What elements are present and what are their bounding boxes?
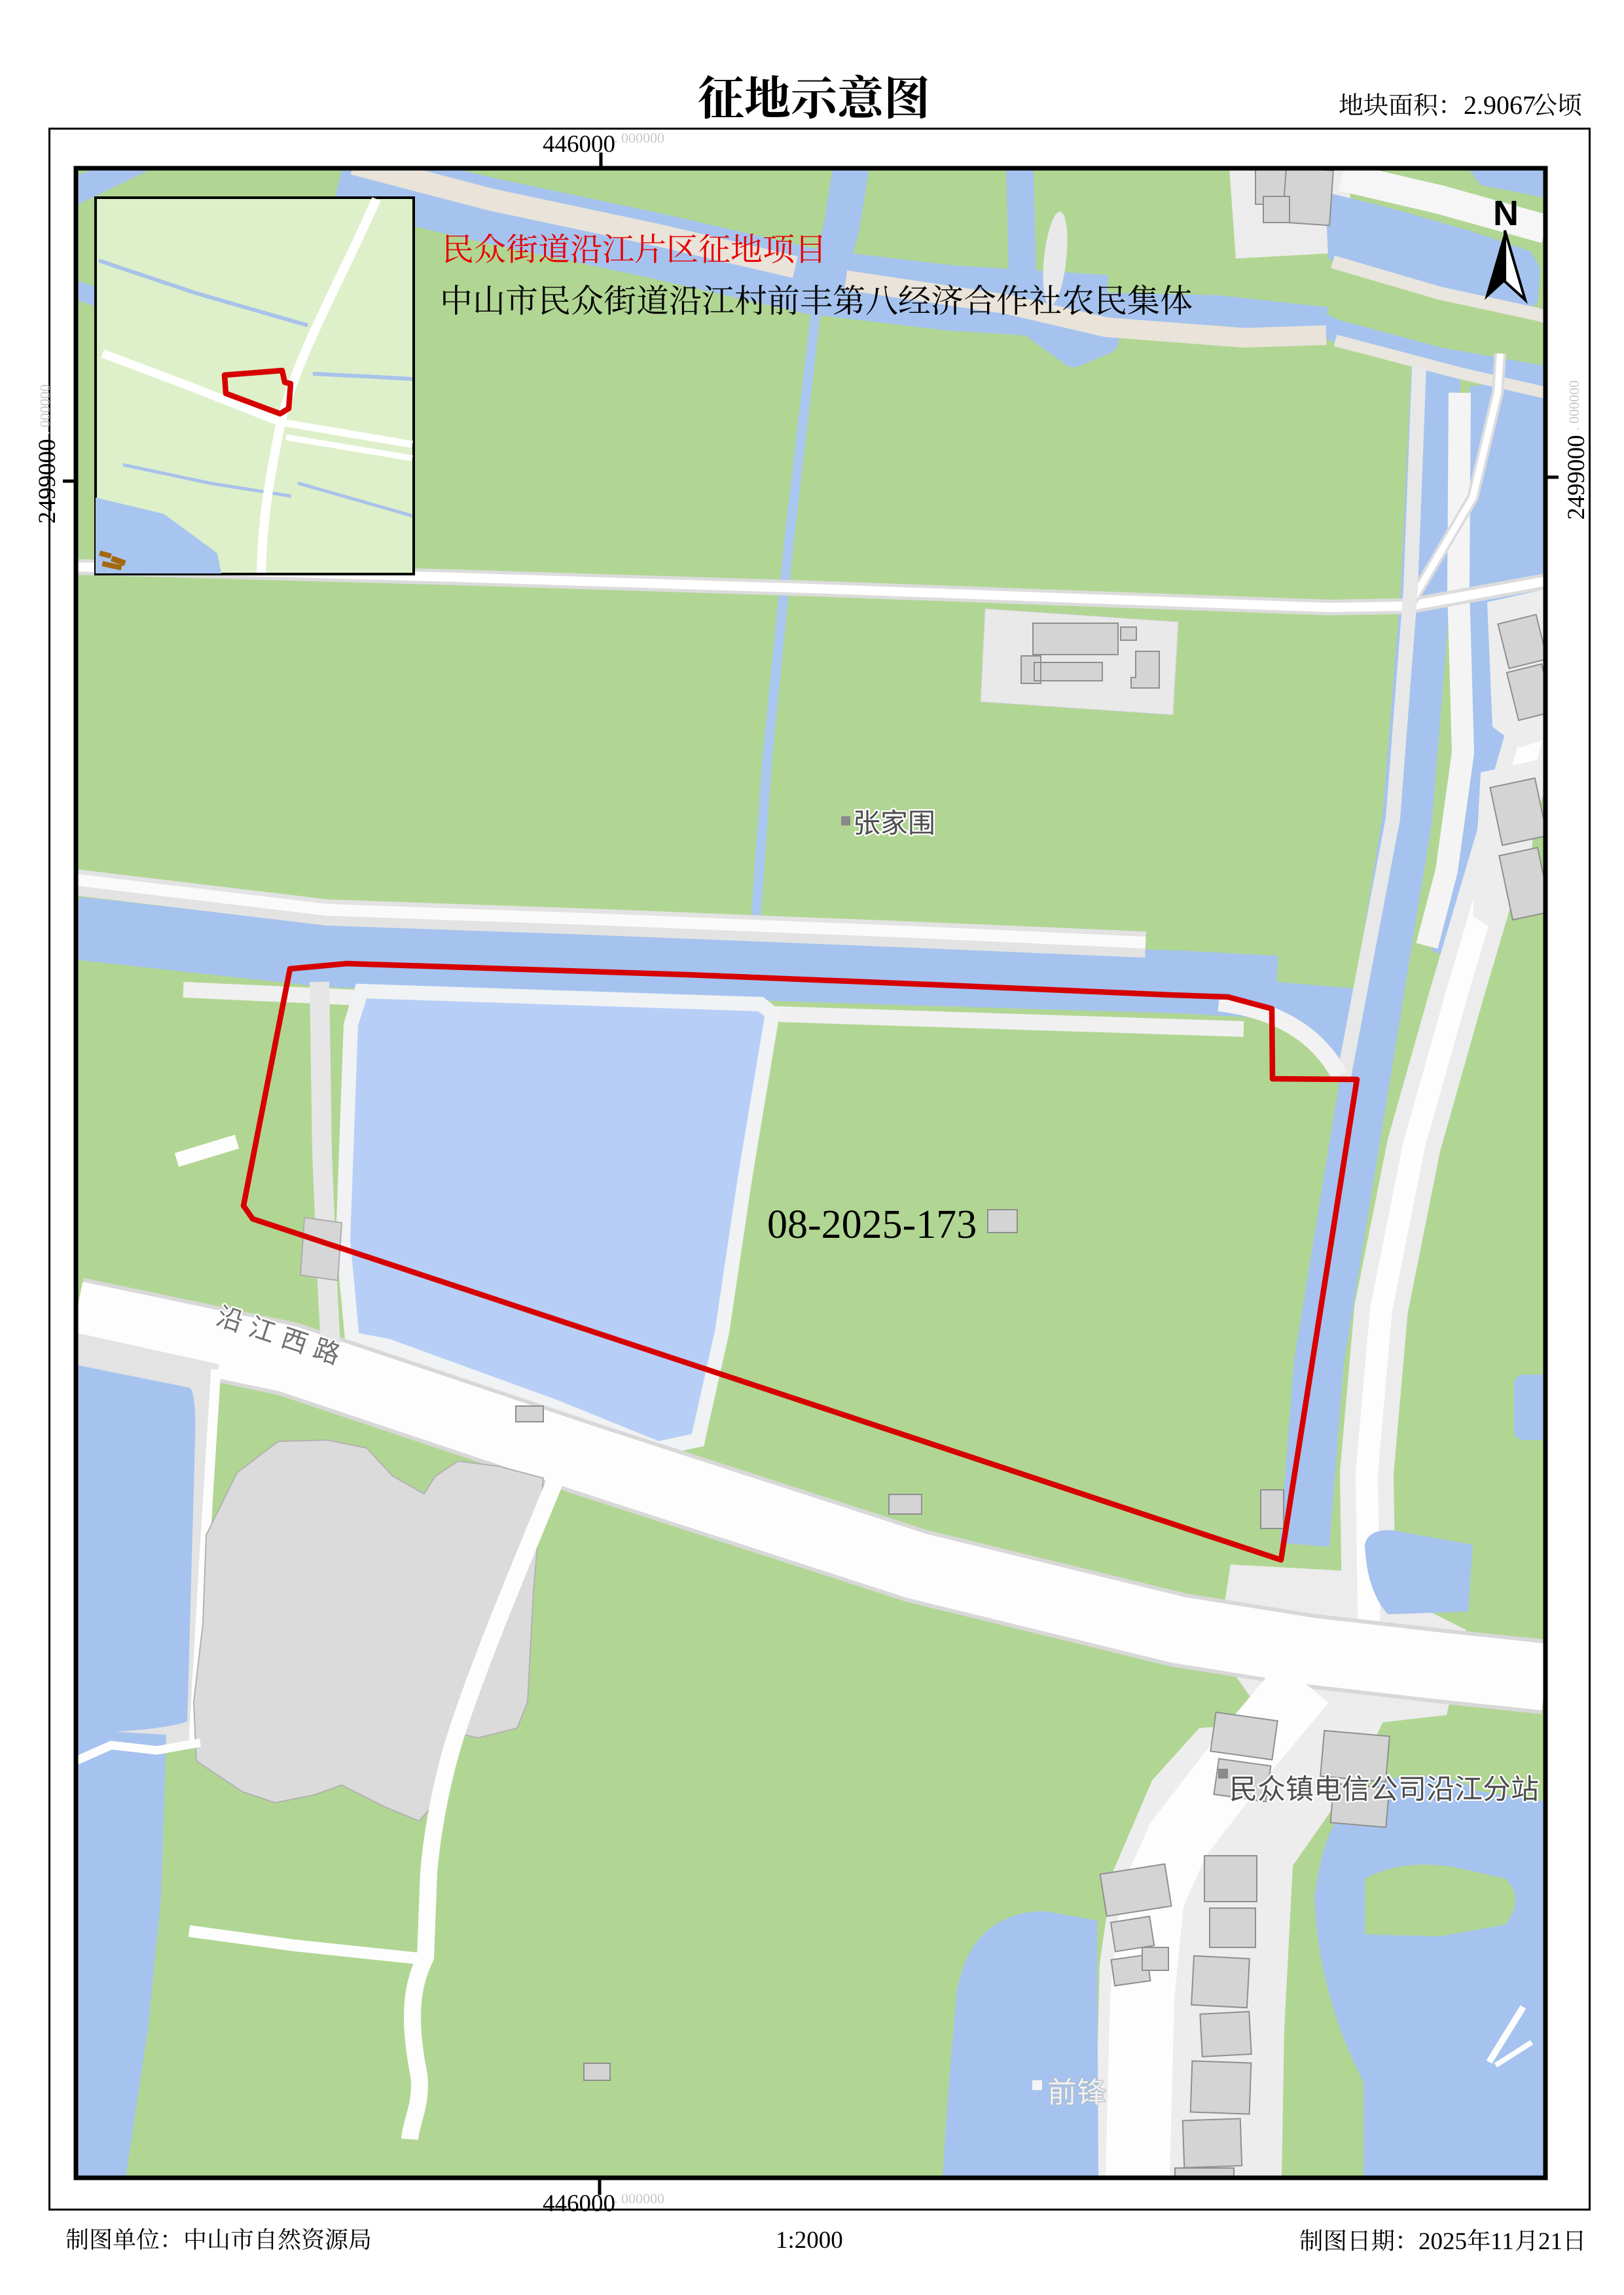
svg-text:. 000000: . 000000 xyxy=(37,384,53,435)
svg-text:446000: 446000 xyxy=(543,2190,615,2217)
svg-text:N: N xyxy=(1493,194,1519,233)
svg-text:11: 11 xyxy=(1490,2228,1514,2255)
svg-text:. 000000: . 000000 xyxy=(614,130,664,146)
svg-text:21: 21 xyxy=(1538,2228,1562,2255)
svg-text:1:2000: 1:2000 xyxy=(776,2227,843,2254)
svg-text:. 000000: . 000000 xyxy=(1566,380,1582,431)
svg-text:2499000: 2499000 xyxy=(34,439,61,524)
svg-text:2.9067: 2.9067 xyxy=(1464,90,1536,120)
svg-text:08-2025-173: 08-2025-173 xyxy=(767,1202,977,1247)
svg-text:. 000000: . 000000 xyxy=(614,2190,664,2207)
svg-text:2499000: 2499000 xyxy=(1563,435,1590,520)
svg-text:2025: 2025 xyxy=(1418,2228,1467,2255)
svg-text:446000: 446000 xyxy=(543,131,615,158)
